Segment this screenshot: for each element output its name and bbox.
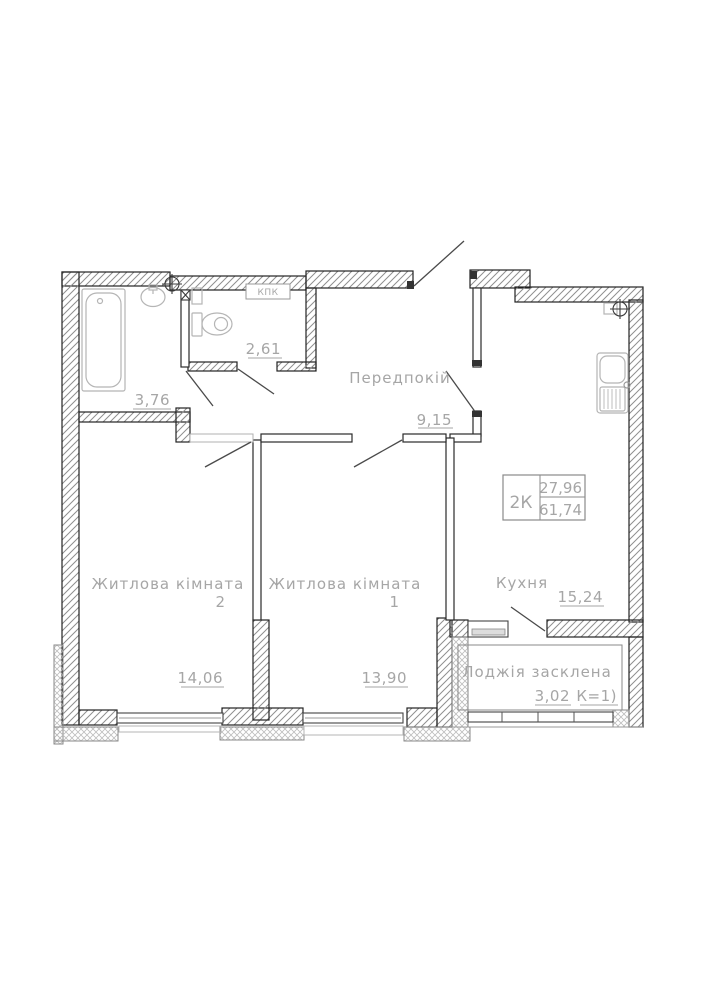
outer-strip-bottom-b	[220, 727, 304, 740]
kitchen-sink-icon	[597, 353, 630, 413]
bathtub-inner	[86, 293, 121, 387]
toilet-icon	[192, 313, 232, 336]
door-swing-loggia	[511, 607, 545, 631]
room1-name: Житлова кімната	[269, 575, 422, 593]
wall-kitchen-hall-turn	[450, 434, 481, 442]
door-swing-room1	[354, 440, 402, 467]
wall-kitchen-loggia	[547, 620, 643, 637]
duct-label: КПК	[257, 288, 278, 298]
bathroom-area: 3,76	[135, 391, 170, 409]
wall-room1-room2	[253, 440, 261, 620]
jamb-cap-entry-right	[470, 271, 477, 279]
exterior-wall-right	[629, 300, 643, 622]
loggia-area: 3,02	[535, 687, 570, 705]
room1-area: 13,90	[362, 669, 407, 687]
door-jamb-caps	[407, 271, 482, 417]
window-sill-room1	[304, 726, 403, 735]
wall-bathroom-bottom	[79, 412, 190, 422]
bathtub-drain	[98, 299, 103, 304]
total-area-value: 61,74	[539, 501, 582, 519]
window-sill-room2	[119, 726, 221, 732]
door-swing-room2	[205, 442, 251, 467]
wall-loggia-corner-right	[613, 710, 629, 727]
door-swing-entry	[414, 241, 464, 286]
kitchen-sink-bowl	[600, 356, 625, 383]
bathtub-icon	[82, 289, 125, 391]
door-swing-bathroom	[186, 371, 213, 406]
kitchen-area: 15,24	[558, 588, 603, 606]
floor-plan: КПК 2,61 3,76 Передпокій 9,15 Житлова кі…	[0, 0, 707, 1000]
wall-room1-top-right	[403, 434, 446, 442]
washbasin-icon	[141, 285, 165, 307]
wc-area: 2,61	[246, 340, 281, 358]
wall-pier-room2-left	[79, 710, 117, 725]
wall-segment-top-hall	[306, 271, 413, 288]
loggia-coef: К=1)	[576, 687, 617, 705]
toilet-tank	[192, 313, 202, 336]
window-kitchen-loggia-sill	[472, 629, 505, 635]
wall-segment-top-kitchen	[515, 287, 643, 302]
wall-pier-room1-right	[407, 708, 437, 727]
wall-jamb-bathroom	[176, 408, 190, 442]
jamb-cap-kitchen-top	[472, 360, 482, 366]
info-box: 2К 27,96 61,74	[503, 475, 585, 520]
living-area-value: 27,96	[539, 479, 582, 497]
bathtub-outer	[82, 289, 125, 391]
wall-room1-kitchen	[446, 438, 454, 620]
wall-wc-bottom-left	[188, 362, 237, 371]
toilet-bowl-inner	[215, 318, 228, 331]
threshold-room2-door	[190, 434, 253, 442]
wall-segment-top-entry-right	[470, 270, 530, 288]
valve-icon	[181, 290, 190, 300]
wall-wc-bottom-right	[277, 362, 316, 371]
outer-strip-bottom-a	[54, 727, 118, 741]
room1-number: 1	[389, 593, 400, 611]
apartment-type: 2К	[510, 493, 533, 513]
jamb-cap-kitchen-bottom	[472, 411, 482, 417]
room2-area: 14,06	[178, 669, 223, 687]
hallway-area: 9,15	[417, 411, 452, 429]
wall-loggia-left-corner	[450, 620, 468, 637]
kitchen-name: Кухня	[496, 574, 548, 592]
wall-room1-top-left	[261, 434, 352, 442]
room-labels: 2,61 3,76 Передпокій 9,15 Житлова кімнат…	[92, 340, 618, 705]
wall-partition-rooms-base	[253, 620, 269, 720]
hallway-name: Передпокій	[349, 369, 451, 387]
exterior-wall-left	[62, 272, 79, 725]
wall-loggia-left	[452, 637, 468, 727]
floor-plan-page: КПК 2,61 3,76 Передпокій 9,15 Житлова кі…	[0, 0, 707, 1000]
wall-loggia-right	[629, 637, 643, 727]
outer-strip-bottom-c	[404, 727, 470, 741]
window-loggia-front	[468, 712, 613, 722]
room2-name: Житлова кімната	[92, 575, 245, 593]
room2-number: 2	[215, 593, 226, 611]
loggia-name: Лоджія засклена	[462, 663, 612, 681]
partition-walls	[181, 288, 481, 620]
jamb-cap-entry-left	[407, 281, 414, 289]
wall-kitchen-hall-upper	[473, 288, 481, 367]
wall-bath-wc	[181, 290, 189, 367]
door-swing-wc	[238, 369, 274, 394]
wall-wc-right	[306, 288, 316, 368]
